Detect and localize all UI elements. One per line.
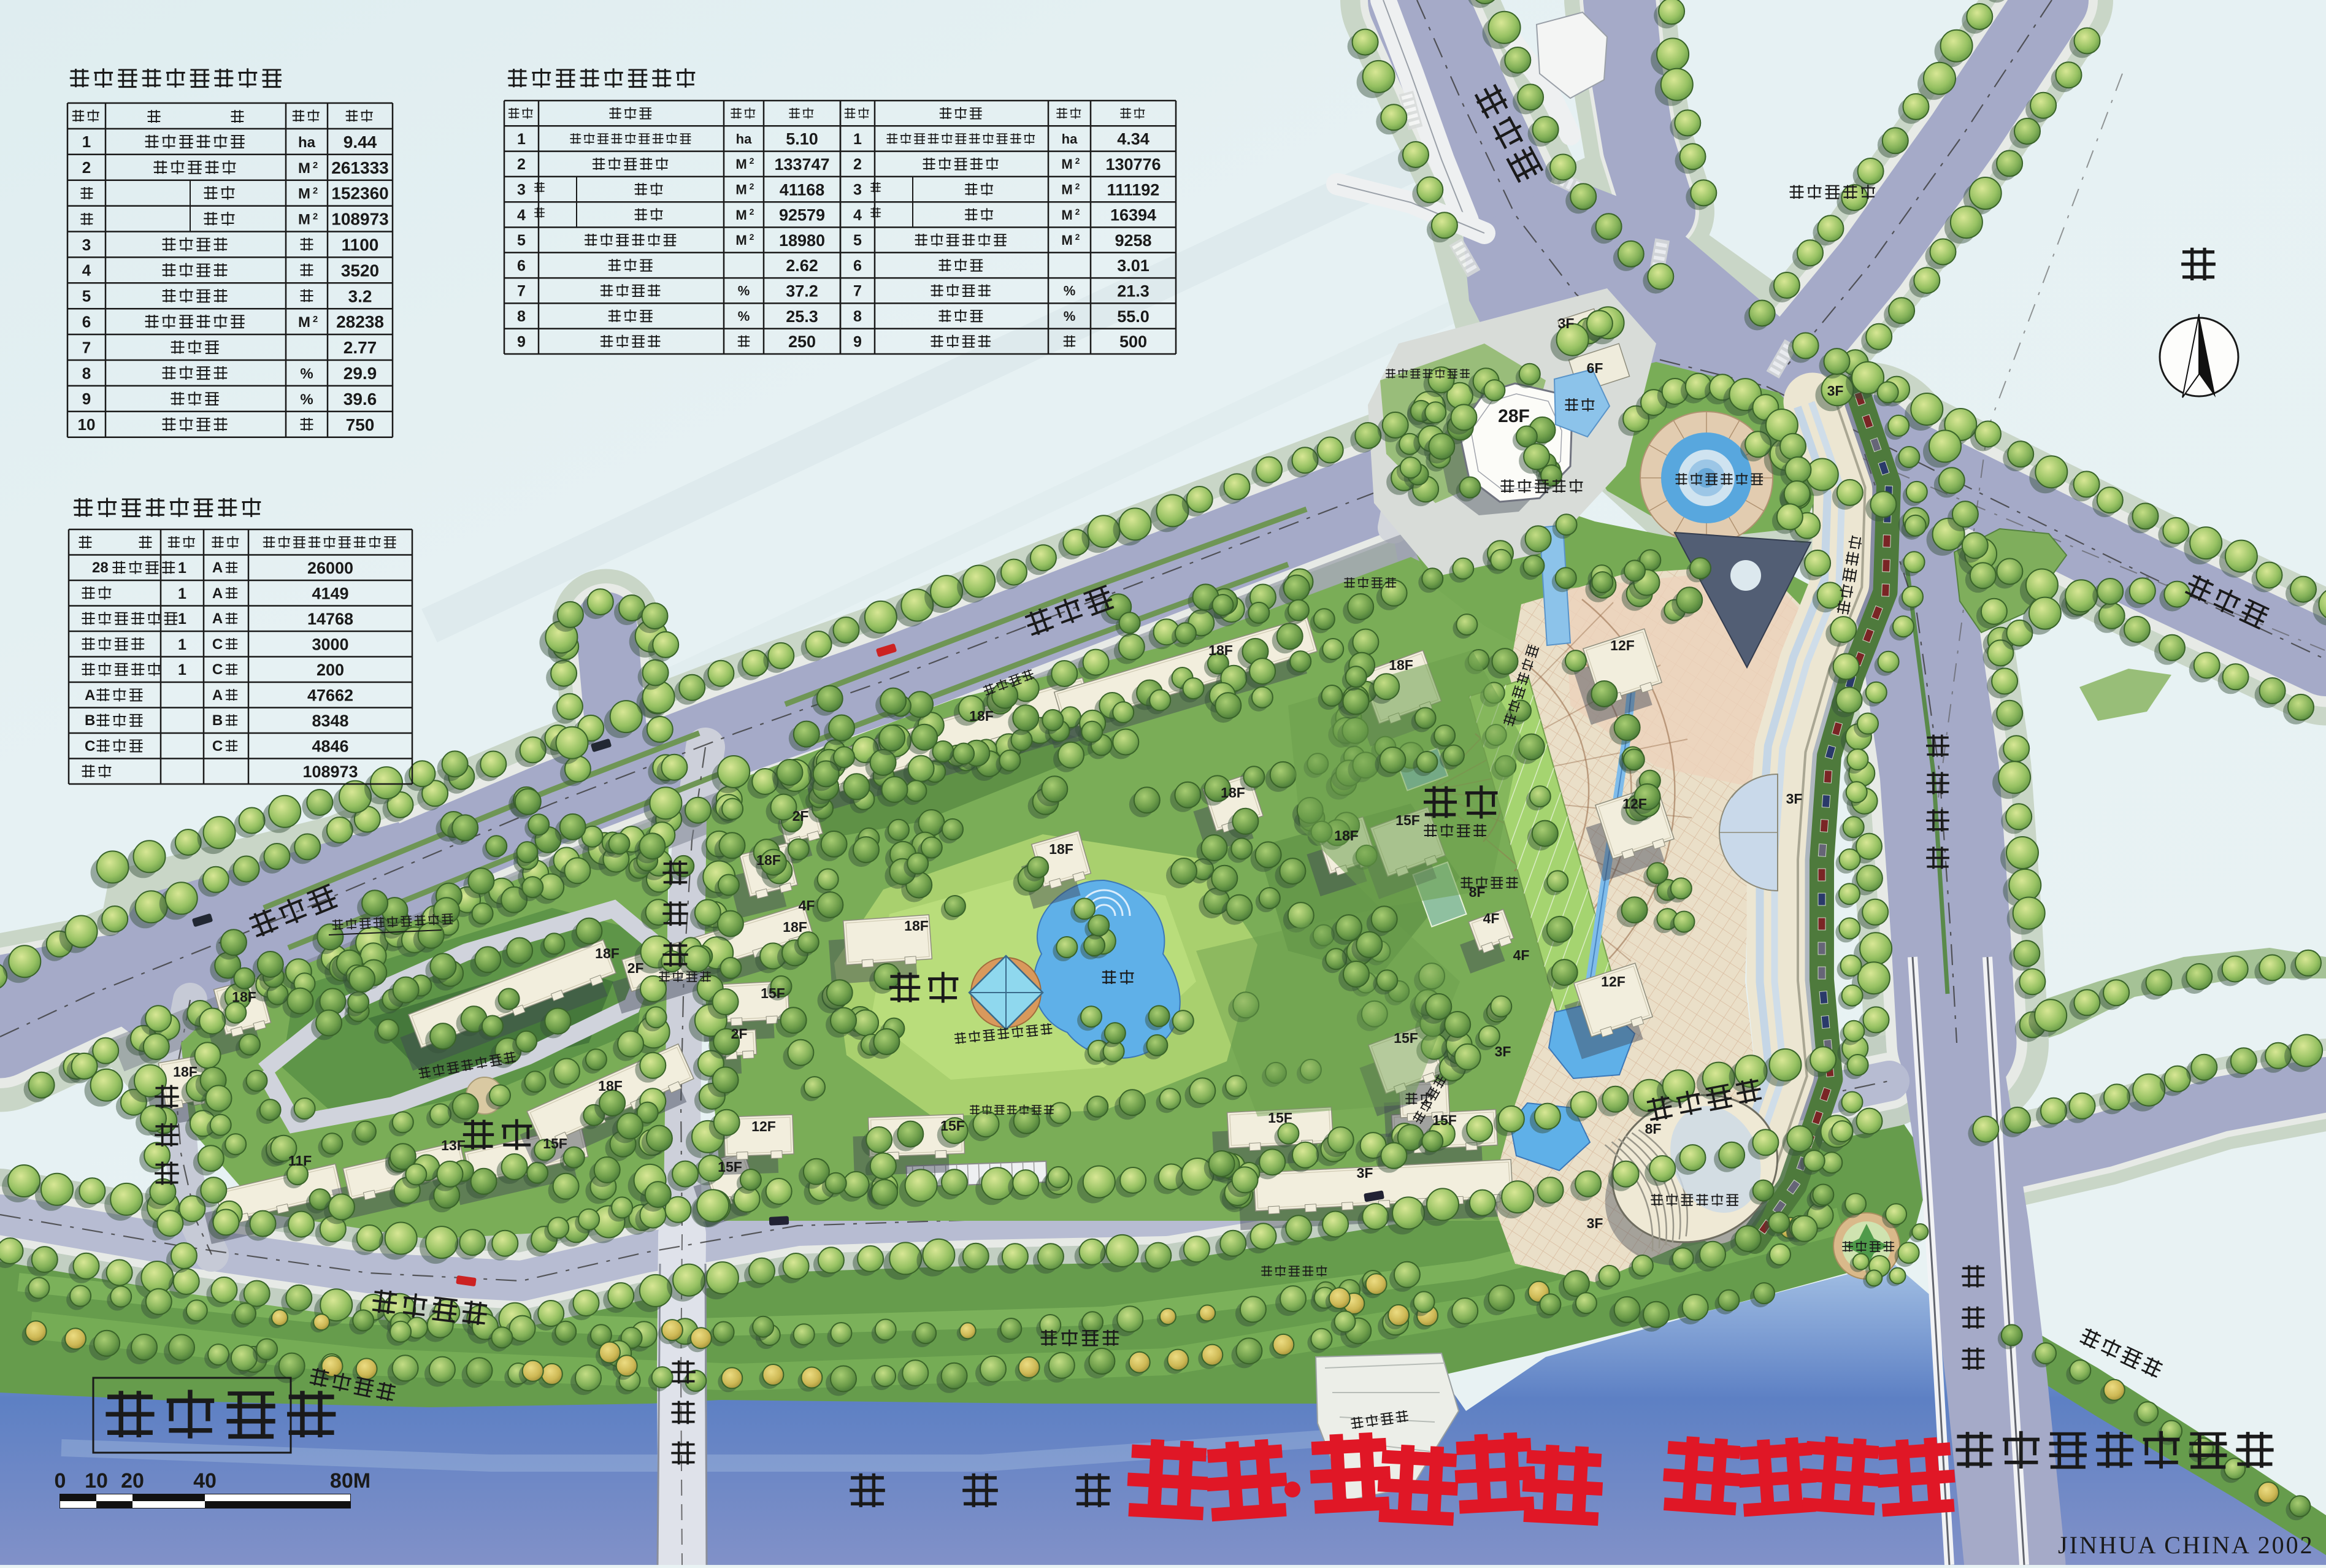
svg-text:18980: 18980 — [779, 231, 825, 250]
svg-text:8348: 8348 — [312, 712, 348, 730]
svg-text:M: M — [735, 182, 747, 198]
svg-text:M: M — [735, 156, 747, 172]
svg-text:11F: 11F — [288, 1153, 312, 1169]
svg-text:5.10: 5.10 — [786, 130, 818, 148]
svg-text:20: 20 — [121, 1469, 144, 1493]
svg-text:4: 4 — [853, 207, 862, 224]
svg-text:3520: 3520 — [341, 261, 379, 280]
svg-text:3: 3 — [517, 182, 526, 199]
svg-text:8: 8 — [853, 308, 862, 325]
svg-text:10: 10 — [78, 415, 96, 434]
svg-text:C: C — [85, 738, 95, 755]
svg-text:18F: 18F — [783, 919, 807, 935]
svg-text:M: M — [1061, 156, 1072, 172]
svg-text:15F: 15F — [761, 985, 785, 1001]
svg-text:4846: 4846 — [312, 737, 348, 756]
svg-text:18F: 18F — [1049, 841, 1073, 857]
svg-text:3.2: 3.2 — [348, 286, 372, 306]
svg-text:80M: 80M — [330, 1469, 370, 1493]
svg-text:25.3: 25.3 — [786, 307, 818, 326]
svg-text:15F: 15F — [543, 1136, 567, 1151]
svg-text:14768: 14768 — [307, 610, 353, 628]
svg-text:12F: 12F — [751, 1118, 776, 1134]
svg-text:250: 250 — [788, 332, 816, 351]
svg-text:4: 4 — [82, 261, 91, 280]
svg-text:3: 3 — [853, 182, 862, 199]
svg-text:2: 2 — [1075, 156, 1080, 166]
svg-text:A: A — [85, 687, 95, 704]
svg-text:%: % — [738, 309, 750, 324]
svg-text:1: 1 — [178, 636, 186, 653]
svg-text:4149: 4149 — [312, 585, 348, 603]
svg-text:5: 5 — [82, 287, 91, 306]
svg-text:18F: 18F — [1208, 642, 1233, 658]
svg-text:5: 5 — [517, 232, 526, 249]
svg-text:15F: 15F — [1394, 1030, 1418, 1046]
svg-text:6: 6 — [82, 313, 91, 331]
svg-text:55.0: 55.0 — [1117, 307, 1150, 326]
svg-text:1: 1 — [178, 661, 186, 678]
svg-text:3000: 3000 — [312, 636, 348, 654]
svg-text:26000: 26000 — [307, 559, 353, 577]
svg-text:8F: 8F — [1469, 884, 1486, 900]
svg-text:3: 3 — [82, 236, 91, 254]
svg-text:%: % — [1064, 283, 1076, 299]
svg-text:200: 200 — [317, 661, 344, 679]
svg-text:2: 2 — [750, 207, 754, 217]
svg-text:15F: 15F — [1268, 1110, 1292, 1126]
svg-text:A: A — [212, 559, 223, 576]
svg-text:2: 2 — [313, 186, 318, 196]
svg-text:2F: 2F — [793, 808, 809, 824]
svg-text:16394: 16394 — [1110, 206, 1156, 225]
svg-text:4F: 4F — [1513, 947, 1530, 963]
svg-text:12F: 12F — [1601, 974, 1626, 990]
svg-text:500: 500 — [1119, 332, 1147, 351]
svg-text:12F: 12F — [1622, 796, 1647, 812]
svg-text:C: C — [212, 636, 223, 653]
svg-text:9.44: 9.44 — [344, 133, 377, 152]
svg-text:4F: 4F — [1483, 910, 1500, 926]
svg-text:41168: 41168 — [780, 180, 825, 199]
svg-text:2: 2 — [750, 232, 754, 242]
svg-text:18F: 18F — [904, 918, 929, 934]
svg-text:%: % — [300, 366, 313, 382]
svg-text:1: 1 — [178, 559, 186, 577]
svg-text:M: M — [1061, 233, 1072, 248]
svg-text:2.62: 2.62 — [786, 256, 818, 275]
svg-text:6: 6 — [853, 257, 862, 274]
svg-text:%: % — [738, 283, 750, 299]
svg-text:1: 1 — [853, 131, 862, 148]
svg-text:108973: 108973 — [331, 210, 388, 229]
svg-text:18F: 18F — [969, 708, 994, 724]
svg-text:3F: 3F — [1587, 1215, 1603, 1231]
svg-text:37.2: 37.2 — [786, 282, 818, 301]
svg-text:92579: 92579 — [779, 206, 825, 225]
svg-text:1: 1 — [178, 585, 186, 602]
svg-text:4: 4 — [517, 207, 526, 224]
svg-text:3.01: 3.01 — [1117, 256, 1150, 275]
svg-text:9: 9 — [517, 333, 526, 350]
svg-text:C: C — [212, 738, 223, 755]
svg-text:7: 7 — [82, 338, 91, 356]
svg-text:2: 2 — [313, 212, 318, 222]
svg-text:6F: 6F — [1587, 360, 1603, 376]
svg-text:28238: 28238 — [336, 312, 384, 331]
svg-text:2: 2 — [313, 314, 318, 325]
svg-text:C: C — [212, 661, 223, 678]
svg-text:ha: ha — [298, 134, 316, 151]
svg-text:13F: 13F — [441, 1137, 466, 1153]
svg-text:2: 2 — [1075, 232, 1080, 242]
svg-text:10: 10 — [85, 1469, 108, 1493]
svg-text:8F: 8F — [1645, 1121, 1662, 1137]
svg-text:3F: 3F — [1357, 1165, 1373, 1181]
svg-text:2.77: 2.77 — [344, 338, 377, 357]
svg-text:M: M — [1061, 207, 1072, 223]
svg-text:M: M — [1061, 182, 1072, 198]
svg-text:12F: 12F — [1610, 637, 1635, 653]
svg-text:M: M — [298, 160, 310, 177]
svg-text:1: 1 — [517, 131, 526, 148]
svg-text:9258: 9258 — [1115, 231, 1151, 250]
svg-text:2: 2 — [313, 160, 318, 171]
svg-text:A: A — [212, 687, 223, 704]
svg-text:15F: 15F — [718, 1159, 742, 1175]
svg-text:3F: 3F — [1786, 791, 1803, 807]
svg-text:18F: 18F — [232, 989, 256, 1005]
svg-text:4F: 4F — [799, 897, 815, 913]
svg-text:2: 2 — [750, 156, 754, 166]
svg-text:9: 9 — [853, 333, 862, 350]
svg-text:2F: 2F — [628, 960, 644, 976]
svg-text:2: 2 — [517, 156, 526, 173]
svg-text:3F: 3F — [1495, 1043, 1511, 1059]
svg-text:15F: 15F — [1432, 1112, 1457, 1128]
svg-text:40: 40 — [193, 1469, 217, 1493]
svg-text:ha: ha — [1062, 131, 1078, 147]
svg-text:1100: 1100 — [342, 236, 379, 255]
svg-text:7: 7 — [853, 283, 862, 300]
svg-text:3F: 3F — [1558, 315, 1575, 331]
svg-text:9: 9 — [82, 390, 91, 408]
svg-text:5: 5 — [853, 232, 862, 249]
svg-text:M: M — [298, 314, 310, 331]
svg-text:18F: 18F — [756, 852, 781, 868]
svg-text:29.9: 29.9 — [344, 364, 377, 383]
svg-text:15F: 15F — [1395, 812, 1420, 828]
svg-text:18F: 18F — [1334, 828, 1359, 844]
svg-text:47662: 47662 — [307, 686, 353, 705]
svg-text:M: M — [735, 207, 747, 223]
svg-text:133747: 133747 — [774, 155, 829, 174]
svg-text:6: 6 — [517, 257, 526, 274]
svg-text:18F: 18F — [1221, 785, 1245, 801]
svg-text:28: 28 — [92, 559, 109, 576]
svg-text:39.6: 39.6 — [344, 390, 377, 409]
svg-text:JINHUA CHINA 2002: JINHUA CHINA 2002 — [2058, 1531, 2314, 1559]
svg-text:B: B — [212, 712, 223, 729]
svg-text:15F: 15F — [940, 1118, 965, 1134]
svg-text:18F: 18F — [598, 1078, 623, 1094]
svg-text:2: 2 — [853, 156, 862, 173]
svg-text:2: 2 — [1075, 182, 1080, 191]
svg-text:152360: 152360 — [331, 184, 388, 203]
svg-text:%: % — [300, 391, 313, 408]
svg-text:8: 8 — [517, 308, 526, 325]
svg-text:2: 2 — [82, 158, 91, 177]
svg-text:21.3: 21.3 — [1117, 282, 1150, 301]
svg-text:%: % — [1064, 309, 1076, 324]
svg-text:1: 1 — [178, 610, 186, 628]
svg-text:2F: 2F — [731, 1026, 748, 1042]
svg-text:7: 7 — [517, 283, 526, 300]
svg-text:750: 750 — [346, 415, 375, 434]
svg-text:1: 1 — [82, 133, 91, 151]
svg-text:111192: 111192 — [1107, 180, 1160, 199]
svg-text:8: 8 — [82, 364, 91, 382]
svg-text:261333: 261333 — [331, 158, 388, 177]
svg-text:A: A — [212, 610, 223, 627]
svg-text:2: 2 — [750, 182, 754, 191]
svg-text:ha: ha — [736, 131, 752, 147]
svg-text:18F: 18F — [595, 945, 620, 961]
svg-text:130776: 130776 — [1105, 155, 1161, 174]
svg-text:4.34: 4.34 — [1117, 130, 1150, 148]
svg-text:18F: 18F — [1389, 657, 1413, 673]
svg-text:M: M — [298, 212, 310, 228]
svg-text:3F: 3F — [1827, 383, 1844, 399]
svg-text:28F: 28F — [1498, 406, 1530, 426]
svg-text:M: M — [735, 233, 747, 248]
svg-text:2: 2 — [1075, 207, 1080, 217]
svg-text:108973: 108973 — [302, 763, 358, 781]
svg-text:18F: 18F — [173, 1064, 198, 1080]
svg-text:B: B — [85, 712, 95, 729]
svg-text:A: A — [212, 585, 223, 602]
svg-text:0: 0 — [55, 1469, 66, 1493]
svg-text:M: M — [298, 186, 310, 202]
